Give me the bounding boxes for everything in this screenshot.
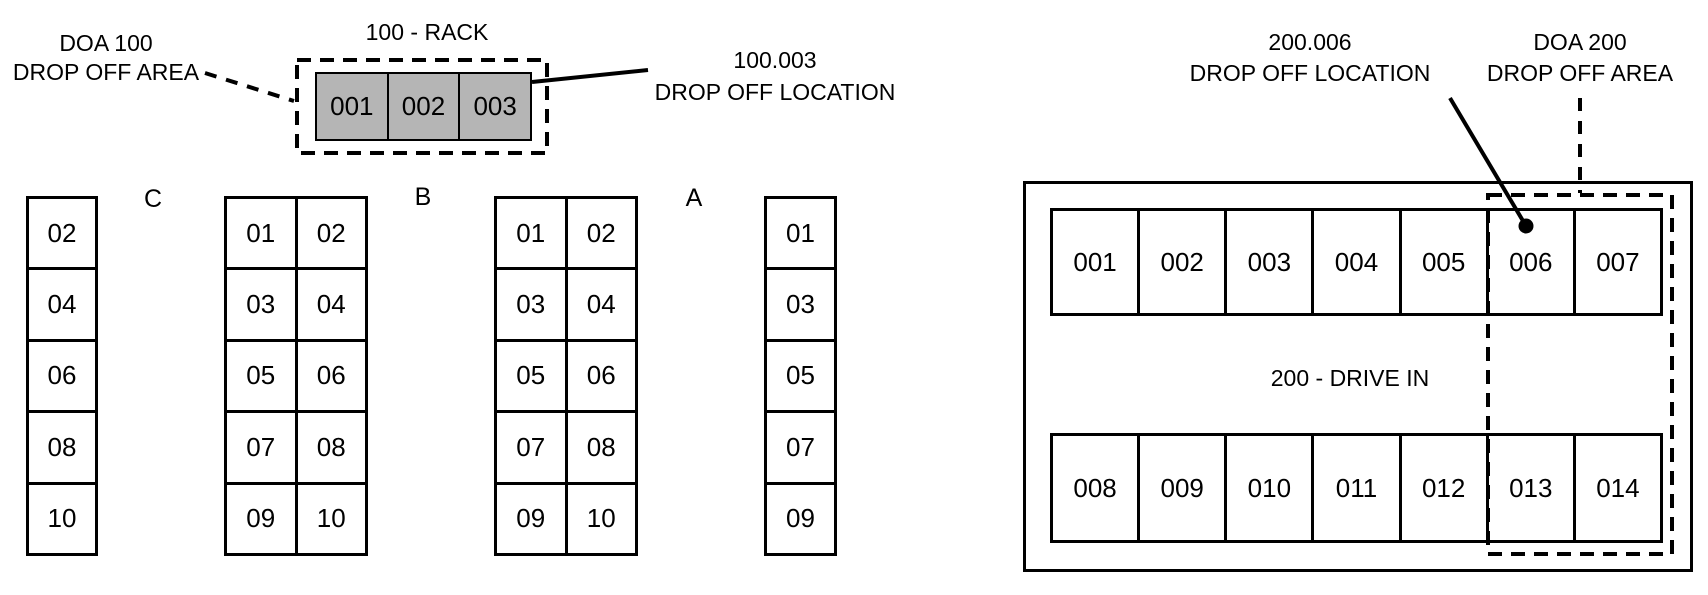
storage-column-4: 01 03 05 07 09	[764, 196, 837, 556]
storage-cell: 03	[227, 270, 295, 338]
location-200-006-label: 200.006 DROP OFF LOCATION	[1190, 27, 1431, 89]
rack-cell-001: 001	[317, 74, 387, 139]
rack-100: 001 002 003	[315, 72, 532, 141]
storage-column-2: 01 02 03 04 05 06 07 08 09 10	[224, 196, 368, 556]
storage-cell: 07	[767, 413, 834, 481]
storage-cell: 04	[298, 270, 366, 338]
drive-in-cell-001: 001	[1053, 211, 1137, 313]
storage-cell: 06	[29, 342, 95, 410]
drive-in-cell-011: 011	[1314, 436, 1398, 540]
storage-cell: 08	[568, 413, 636, 481]
storage-cell: 07	[497, 413, 565, 481]
storage-cell: 05	[767, 342, 834, 410]
rack-cell-003: 003	[460, 74, 530, 139]
aisle-label-b: B	[415, 184, 432, 211]
rack-cell-002: 002	[389, 74, 459, 139]
drive-in-cell-008: 008	[1053, 436, 1137, 540]
location-100-003-label-line2: DROP OFF LOCATION	[655, 76, 896, 108]
drive-in-200-title: 200 - DRIVE IN	[1271, 363, 1430, 393]
drive-in-cell-006: 006	[1489, 211, 1573, 313]
storage-cell: 10	[568, 485, 636, 553]
drive-in-cell-012: 012	[1402, 436, 1486, 540]
storage-cell: 03	[767, 270, 834, 338]
doa-200-label: DOA 200 DROP OFF AREA	[1487, 27, 1673, 89]
drive-in-cell-010: 010	[1227, 436, 1311, 540]
storage-cell: 05	[227, 342, 295, 410]
doa-100-label-line2: DROP OFF AREA	[13, 58, 199, 87]
storage-cell: 01	[227, 199, 295, 267]
location-100-003-label: 100.003 DROP OFF LOCATION	[655, 44, 896, 108]
storage-cell: 03	[497, 270, 565, 338]
doa-100-leader-line	[205, 73, 294, 101]
location-100-003-leader-line	[532, 70, 648, 82]
storage-cell: 10	[298, 485, 366, 553]
doa-100-label: DOA 100 DROP OFF AREA	[13, 29, 199, 87]
storage-cell: 07	[227, 413, 295, 481]
doa-100-label-line1: DOA 100	[13, 29, 199, 58]
doa-200-label-line2: DROP OFF AREA	[1487, 58, 1673, 89]
drive-in-cell-003: 003	[1227, 211, 1311, 313]
storage-cell: 09	[227, 485, 295, 553]
aisle-label-a: A	[686, 185, 703, 212]
storage-cell: 02	[568, 199, 636, 267]
storage-cell: 01	[497, 199, 565, 267]
storage-cell: 02	[298, 199, 366, 267]
storage-cell: 08	[29, 413, 95, 481]
drive-in-cell-002: 002	[1140, 211, 1224, 313]
aisle-label-c: C	[144, 186, 162, 213]
drive-in-cell-013: 013	[1489, 436, 1573, 540]
storage-cell: 04	[29, 270, 95, 338]
drive-in-cell-014: 014	[1576, 436, 1660, 540]
storage-cell: 01	[767, 199, 834, 267]
storage-column-1: 02 04 06 08 10	[26, 196, 98, 556]
storage-cell: 10	[29, 485, 95, 553]
drive-in-cell-007: 007	[1576, 211, 1660, 313]
doa-200-label-line1: DOA 200	[1487, 27, 1673, 58]
drive-in-bottom-row: 008 009 010 011 012 013 014	[1050, 433, 1663, 543]
storage-cell: 09	[767, 485, 834, 553]
drive-in-cell-005: 005	[1402, 211, 1486, 313]
rack-100-title: 100 - RACK	[366, 17, 489, 47]
location-200-006-label-line1: 200.006	[1190, 27, 1431, 58]
storage-cell: 02	[29, 199, 95, 267]
storage-column-3: 01 02 03 04 05 06 07 08 09 10	[494, 196, 638, 556]
storage-cell: 09	[497, 485, 565, 553]
location-100-003-label-line1: 100.003	[655, 44, 896, 76]
drive-in-cell-004: 004	[1314, 211, 1398, 313]
drive-in-cell-009: 009	[1140, 436, 1224, 540]
location-200-006-label-line2: DROP OFF LOCATION	[1190, 58, 1431, 89]
storage-cell: 06	[298, 342, 366, 410]
drive-in-top-row: 001 002 003 004 005 006 007	[1050, 208, 1663, 316]
storage-cell: 08	[298, 413, 366, 481]
warehouse-layout-diagram: DOA 100 DROP OFF AREA 100 - RACK 100.003…	[0, 0, 1708, 595]
storage-cell: 05	[497, 342, 565, 410]
storage-cell: 04	[568, 270, 636, 338]
storage-cell: 06	[568, 342, 636, 410]
